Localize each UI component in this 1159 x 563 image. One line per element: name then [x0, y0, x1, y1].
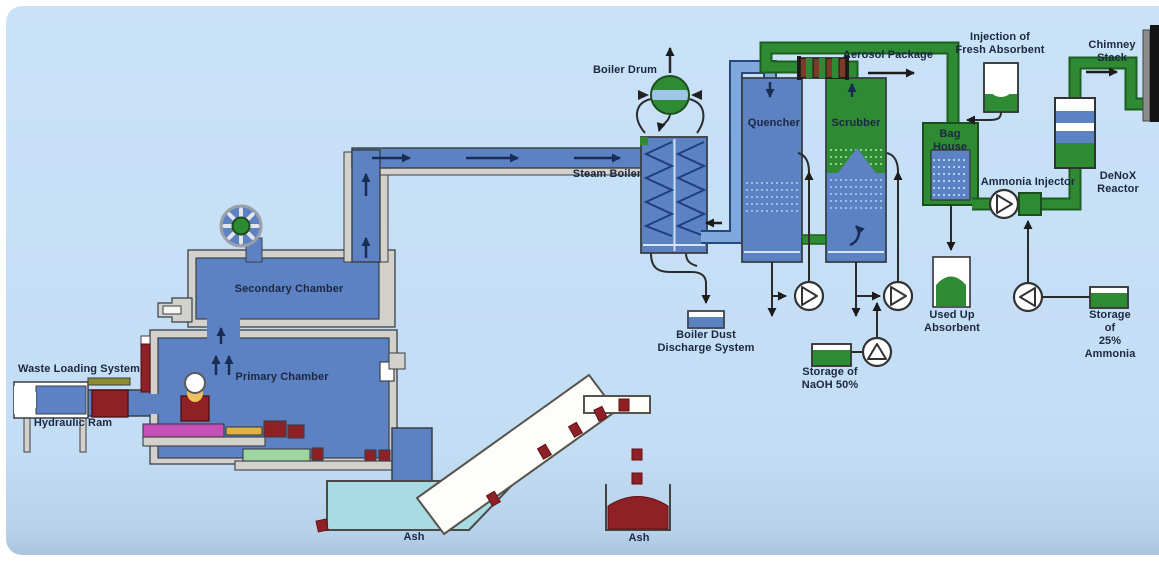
incinerator-process-diagram: Waste Loading System Hydraulic Ram Prima…	[0, 0, 1159, 563]
label-quencher: Quencher	[748, 117, 800, 130]
quencher-pump-icon	[795, 282, 823, 310]
wall-step	[389, 353, 405, 369]
quencher-vessel	[742, 78, 802, 262]
naoh-storage-tank	[812, 344, 851, 366]
label-used-up-absorbent: Used Up Absorbent	[924, 309, 980, 335]
label-ash-left: Ash	[403, 531, 424, 544]
scrubber-pump-icon	[884, 282, 912, 310]
hydraulic-ram-block	[92, 390, 128, 417]
label-primary-chamber: Primary Chamber	[235, 371, 328, 384]
ammonia-storage-tank	[1090, 287, 1128, 308]
waste-hopper	[14, 378, 130, 452]
ash-container	[606, 484, 670, 530]
label-storage-naoh: Storage of NaOH 50%	[802, 366, 858, 392]
label-chimney-stack: Chimney Stack	[1088, 39, 1135, 65]
primary-burner-icon	[181, 373, 209, 421]
injector-pump-icon	[990, 190, 1018, 218]
label-waste-loading-system: Waste Loading System	[18, 363, 140, 376]
label-aerosol-package: Aerosol Package	[843, 49, 933, 62]
label-steam-boiler: Steam Boiler	[573, 168, 641, 181]
label-denox-reactor: DeNoX Reactor	[1097, 170, 1139, 196]
boiler-dust-lines	[651, 253, 706, 303]
used-absorbent-tank	[933, 257, 970, 307]
aerosol-package-device	[797, 56, 849, 80]
scrubber-vessel	[826, 78, 886, 262]
label-boiler-drum: Boiler Drum	[593, 64, 657, 77]
flue-duct	[344, 148, 648, 262]
label-ammonia-injector: Ammonia Injector	[981, 176, 1076, 189]
label-scrubber: Scrubber	[831, 117, 880, 130]
denox-reactor-vessel	[1055, 98, 1095, 168]
steam-boiler-vessel	[640, 137, 707, 253]
boiler-drum-vessel	[637, 48, 703, 133]
label-secondary-chamber: Secondary Chamber	[235, 283, 344, 296]
naoh-pump-icon	[863, 338, 891, 366]
ammonia-pump-icon	[1014, 283, 1042, 311]
label-bag-house: Bag House	[933, 128, 967, 154]
injector-valve-icon	[1019, 193, 1041, 215]
label-ash-right: Ash	[628, 532, 649, 545]
boiler-dust-box	[688, 311, 724, 328]
label-storage-ammonia: Storage of 25% Ammonia	[1085, 309, 1136, 361]
label-hydraulic-ram: Hydraulic Ram	[34, 417, 112, 430]
chimney-stack-icon	[1143, 25, 1159, 122]
label-boiler-dust-discharge: Boiler Dust Discharge System	[658, 329, 755, 355]
burner-rod-icon	[141, 336, 150, 392]
loader-rail	[88, 378, 130, 385]
label-injection-fresh-absorbent: Injection of Fresh Absorbent	[955, 31, 1044, 57]
quencher-scrubber-connector	[802, 235, 826, 244]
fresh-absorbent-tank	[967, 63, 1018, 120]
process-flow-drawing	[0, 0, 1159, 563]
ash-chute	[392, 428, 432, 487]
